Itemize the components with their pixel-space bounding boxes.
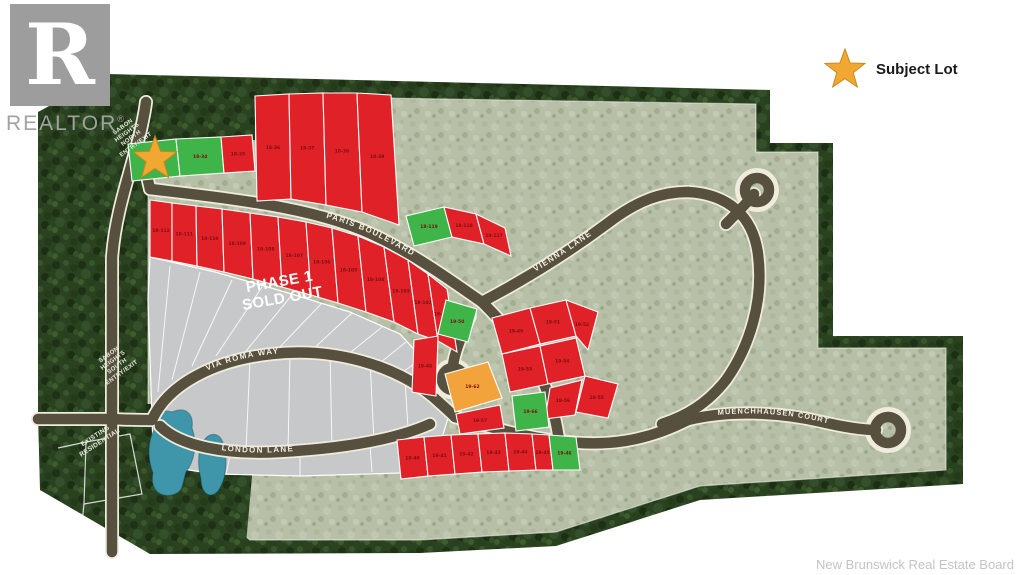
- lot-number: 19-54: [555, 359, 569, 365]
- lot-number: 18-119: [420, 224, 438, 230]
- lot-number: 19-45: [535, 450, 549, 456]
- realtor-monogram: R: [25, 13, 95, 97]
- attribution: New Brunswick Real Estate Board: [816, 557, 1014, 572]
- lot-number: 19-49: [509, 329, 523, 335]
- lot-number: 18-105: [340, 267, 358, 273]
- lot-number: 19-66: [523, 409, 537, 415]
- lot-number: 18-107: [285, 253, 303, 259]
- lot-number: 19-55: [590, 395, 604, 401]
- lot-number: 19-50: [450, 319, 464, 325]
- legend: Subject Lot: [822, 46, 958, 92]
- lot-number: 18-104: [367, 277, 385, 283]
- lot-number: 18-37: [300, 145, 314, 151]
- lot-number: 18-118: [455, 223, 473, 229]
- lot-number: 19-57: [473, 418, 487, 424]
- road-south-link: [112, 419, 152, 420]
- realtor-logo-box: R: [10, 4, 110, 106]
- lot-number: 19-46: [557, 451, 571, 457]
- lot-number: 18-112: [152, 228, 170, 234]
- lot-number: 18-39: [370, 154, 384, 160]
- lot-number: 18-38: [335, 148, 349, 154]
- realtor-logo: R REALTOR®: [6, 4, 130, 136]
- lot-number: 19-40: [405, 456, 419, 462]
- legend-label: Subject Lot: [876, 61, 958, 78]
- lot-number: 18-34: [193, 154, 207, 160]
- lot-number: 18-110: [201, 236, 219, 242]
- lot-number: 19-41: [432, 453, 446, 459]
- legend-star-icon: [822, 46, 868, 92]
- lot-number: 19-62: [465, 384, 479, 390]
- site-plan: 18-3418-3518-3618-3718-3818-3918-11918-1…: [0, 0, 1024, 575]
- lot-number: 19-42: [459, 451, 473, 457]
- lot-number: 18-117: [485, 233, 503, 239]
- lot-number: 18-108: [257, 247, 275, 253]
- lot-number: 19-51: [546, 320, 560, 326]
- lot-number: 19-48: [418, 364, 432, 370]
- lot-number: 19-52: [575, 322, 589, 328]
- lot-number: 18-103: [392, 288, 410, 294]
- lot-number: 18-102: [414, 300, 432, 306]
- lot-number: 19-44: [513, 450, 527, 456]
- lot-number: 18-109: [228, 241, 246, 247]
- lot-number: 18-35: [231, 152, 245, 158]
- lot-number: 19-53: [518, 367, 532, 373]
- lot-number: 19-56: [556, 398, 570, 404]
- lot-number: 18-111: [175, 232, 193, 238]
- lot-number: 18-36: [266, 145, 280, 151]
- lot-number: 19-43: [486, 450, 500, 456]
